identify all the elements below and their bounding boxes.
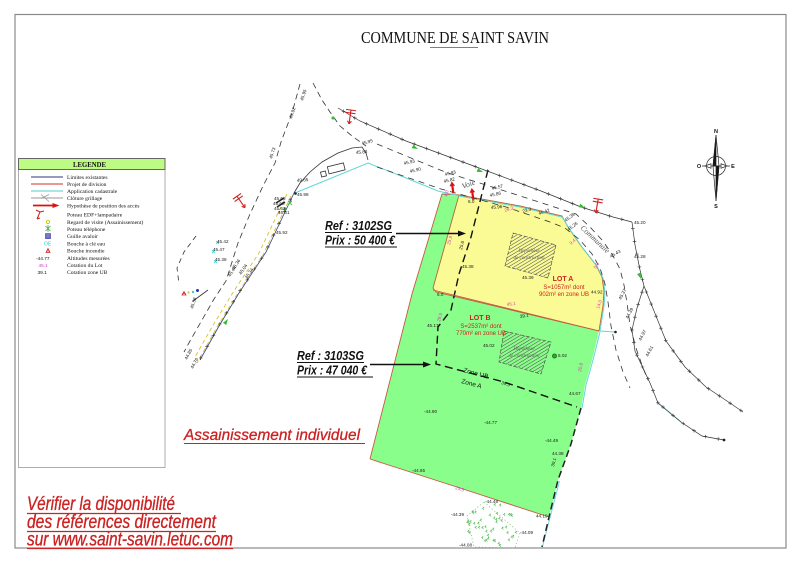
svg-text:sur www.saint-savin.letuc.com: sur www.saint-savin.letuc.com bbox=[27, 530, 233, 551]
svg-text:45.42: 45.42 bbox=[217, 239, 229, 244]
svg-text:-44.48: -44.48 bbox=[485, 499, 498, 504]
svg-text:OE: OE bbox=[44, 242, 52, 248]
svg-text:-44.09: -44.09 bbox=[520, 530, 533, 535]
svg-text:Prix : 47 040 €: Prix : 47 040 € bbox=[297, 364, 368, 378]
svg-text:45.61: 45.61 bbox=[278, 210, 290, 215]
svg-text:Application cadastrale: Application cadastrale bbox=[67, 189, 118, 195]
svg-text:-44.77: -44.77 bbox=[484, 420, 497, 425]
svg-text:44.97: 44.97 bbox=[637, 329, 647, 342]
svg-text:Altitudes mesurées: Altitudes mesurées bbox=[67, 256, 110, 262]
svg-text:770m² en zone UB: 770m² en zone UB bbox=[456, 331, 506, 337]
svg-text:45.73: 45.73 bbox=[268, 146, 276, 159]
svg-text:Cotation zone UB: Cotation zone UB bbox=[67, 270, 108, 276]
svg-text:de construction: de construction bbox=[514, 256, 545, 261]
svg-text:39.1: 39.1 bbox=[38, 270, 48, 276]
svg-text:-44.39: -44.39 bbox=[451, 512, 464, 517]
svg-text:Limites existantes: Limites existantes bbox=[67, 175, 108, 181]
svg-text:45.47: 45.47 bbox=[213, 247, 225, 252]
svg-text:Poteau téléphone: Poteau téléphone bbox=[67, 227, 106, 233]
svg-text:O: O bbox=[697, 164, 702, 170]
svg-text:44.38: 44.38 bbox=[552, 451, 564, 456]
svg-text:45.58: 45.58 bbox=[189, 296, 197, 309]
svg-text:COMMUNE DE SAINT SAVIN: COMMUNE DE SAINT SAVIN bbox=[361, 28, 549, 47]
svg-text:45.28: 45.28 bbox=[634, 254, 646, 259]
svg-text:Bouche à clé eau: Bouche à clé eau bbox=[67, 241, 105, 247]
svg-text:45.93: 45.93 bbox=[444, 169, 457, 177]
svg-text:LOT B: LOT B bbox=[470, 315, 491, 322]
svg-text:-44.65: -44.65 bbox=[412, 468, 425, 473]
svg-text:45.92: 45.92 bbox=[276, 230, 288, 235]
svg-text:45.17: 45.17 bbox=[427, 323, 439, 328]
svg-text:45.92: 45.92 bbox=[288, 106, 296, 119]
svg-text:49.65: 49.65 bbox=[297, 177, 309, 183]
svg-text:5.02: 5.02 bbox=[558, 353, 567, 358]
svg-text:44.39: 44.39 bbox=[624, 307, 634, 320]
svg-text:44.76: 44.76 bbox=[189, 357, 199, 370]
svg-text:44.92: 44.92 bbox=[591, 290, 603, 295]
svg-text:S=1057m² dont: S=1057m² dont bbox=[543, 285, 585, 291]
svg-text:-44.08: -44.08 bbox=[459, 543, 472, 548]
svg-text:6.0: 6.0 bbox=[437, 292, 444, 297]
svg-text:45.90: 45.90 bbox=[409, 166, 422, 174]
svg-text:Poteau EDF+lampadaire: Poteau EDF+lampadaire bbox=[67, 212, 123, 218]
svg-text:Projet de division: Projet de division bbox=[67, 182, 107, 188]
svg-text:902m² en zone UB: 902m² en zone UB bbox=[539, 292, 589, 298]
svg-text:Hypothèse: Hypothèse bbox=[517, 249, 540, 254]
svg-text:Voie: Voie bbox=[460, 177, 477, 190]
svg-text:LOT A: LOT A bbox=[553, 276, 574, 283]
svg-text:45.43: 45.43 bbox=[609, 249, 622, 259]
svg-text:45.95: 45.95 bbox=[299, 88, 307, 101]
svg-text:E: E bbox=[731, 164, 735, 170]
svg-text:45.86: 45.86 bbox=[489, 190, 502, 198]
svg-text:Prix : 50 400 €: Prix : 50 400 € bbox=[325, 234, 396, 248]
svg-text:45.96: 45.96 bbox=[491, 204, 503, 210]
svg-text:-44.77: -44.77 bbox=[36, 256, 50, 262]
svg-text:6.0: 6.0 bbox=[468, 199, 475, 204]
svg-text:45.93: 45.93 bbox=[403, 158, 416, 166]
svg-text:N: N bbox=[714, 129, 718, 135]
svg-text:45.39: 45.39 bbox=[522, 275, 534, 280]
svg-text:44.19: 44.19 bbox=[536, 514, 548, 519]
svg-text:44.61: 44.61 bbox=[644, 345, 654, 358]
svg-text:45.38: 45.38 bbox=[215, 257, 227, 262]
svg-text:45.95: 45.95 bbox=[361, 138, 374, 146]
svg-text:de construction: de construction bbox=[509, 354, 540, 359]
svg-text:S: S bbox=[714, 204, 718, 210]
svg-text:45.20: 45.20 bbox=[634, 220, 646, 225]
svg-text:45.98: 45.98 bbox=[297, 192, 309, 197]
svg-text:Hypothèse: Hypothèse bbox=[512, 347, 535, 352]
svg-text:45.88: 45.88 bbox=[356, 149, 368, 155]
svg-text:Bouche incendie: Bouche incendie bbox=[67, 248, 105, 254]
svg-text:45.26: 45.26 bbox=[567, 220, 579, 231]
svg-text:Clôture grillage: Clôture grillage bbox=[67, 196, 103, 202]
svg-text:S=2537m² dont: S=2537m² dont bbox=[460, 324, 502, 330]
svg-text:Hypothèse de position des accè: Hypothèse de position des accès bbox=[67, 203, 139, 209]
svg-text:Ref : 3102SG: Ref : 3102SG bbox=[325, 219, 392, 233]
svg-text:-44.49: -44.49 bbox=[545, 438, 558, 443]
svg-text:44.67: 44.67 bbox=[569, 391, 581, 396]
svg-text:-44.90: -44.90 bbox=[424, 409, 437, 414]
svg-text:45.02: 45.02 bbox=[483, 343, 495, 348]
svg-text:Assainissement individuel: Assainissement individuel bbox=[183, 427, 361, 444]
svg-text:45.38: 45.38 bbox=[462, 264, 474, 269]
svg-text:Ref : 3103SG: Ref : 3103SG bbox=[297, 349, 364, 363]
svg-text:LEGENDE: LEGENDE bbox=[73, 161, 106, 169]
svg-text:Regard de visite (Assainisseme: Regard de visite (Assainissement) bbox=[67, 219, 143, 226]
svg-text:Cotation du Lot: Cotation du Lot bbox=[67, 263, 103, 269]
svg-text:Guille avaloir: Guille avaloir bbox=[67, 234, 98, 240]
svg-text:45.82: 45.82 bbox=[443, 176, 456, 184]
svg-text:45.1: 45.1 bbox=[39, 263, 49, 269]
